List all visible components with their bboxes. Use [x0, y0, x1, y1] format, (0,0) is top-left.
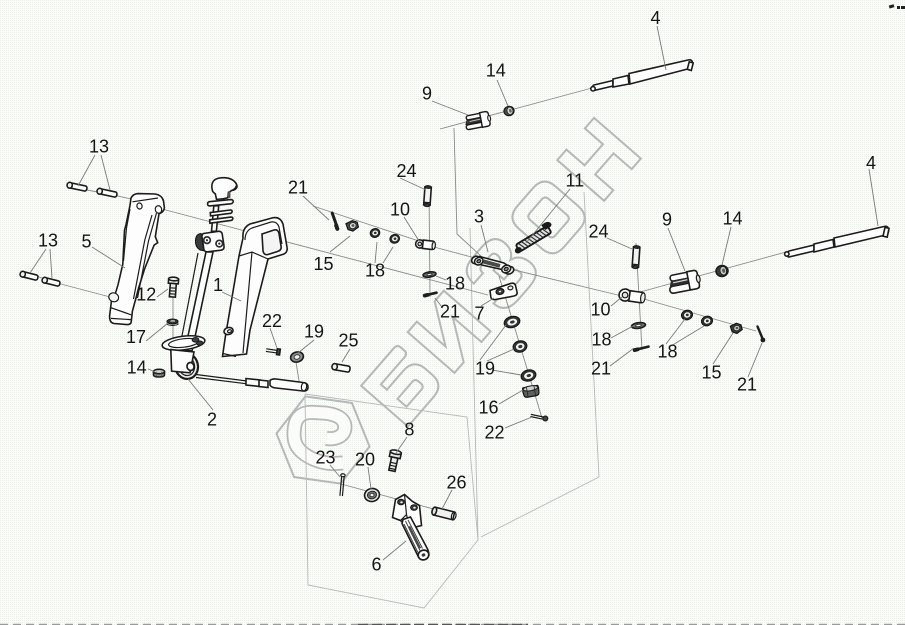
- svg-text:14: 14: [486, 61, 506, 81]
- svg-text:21: 21: [440, 302, 460, 322]
- svg-text:25: 25: [339, 331, 359, 351]
- svg-text:18: 18: [365, 261, 385, 281]
- svg-text:11: 11: [566, 171, 585, 191]
- svg-text:18: 18: [658, 342, 678, 362]
- svg-text:13: 13: [89, 137, 109, 157]
- svg-text:4: 4: [651, 8, 661, 28]
- svg-text:16: 16: [479, 398, 499, 418]
- svg-text:19: 19: [475, 359, 495, 379]
- svg-text:21: 21: [591, 359, 611, 379]
- svg-text:14: 14: [723, 209, 743, 229]
- svg-text:24: 24: [589, 222, 609, 242]
- svg-text:1: 1: [213, 275, 223, 295]
- svg-text:15: 15: [314, 254, 334, 274]
- svg-text:18: 18: [445, 274, 465, 294]
- svg-text:4: 4: [866, 153, 876, 173]
- svg-text:5: 5: [82, 231, 92, 251]
- svg-text:19: 19: [304, 322, 324, 342]
- svg-text:9: 9: [422, 84, 432, 104]
- svg-text:20: 20: [355, 450, 375, 470]
- svg-text:15: 15: [702, 363, 722, 383]
- svg-text:7: 7: [475, 304, 485, 324]
- svg-text:12: 12: [136, 285, 156, 305]
- svg-text:10: 10: [390, 200, 410, 220]
- svg-text:22: 22: [485, 423, 505, 443]
- svg-text:22: 22: [262, 311, 282, 331]
- svg-text:13: 13: [38, 231, 58, 251]
- svg-text:21: 21: [737, 375, 757, 395]
- svg-text:26: 26: [447, 473, 467, 493]
- svg-text:6: 6: [372, 555, 382, 575]
- svg-text:2: 2: [207, 410, 217, 430]
- svg-text:18: 18: [592, 330, 612, 350]
- svg-text:24: 24: [397, 161, 417, 181]
- svg-text:10: 10: [591, 300, 611, 320]
- svg-text:23: 23: [316, 448, 336, 468]
- svg-text:14: 14: [127, 358, 147, 378]
- svg-text:17: 17: [126, 327, 146, 347]
- svg-text:3: 3: [474, 207, 484, 227]
- svg-text:9: 9: [662, 210, 672, 230]
- svg-text:8: 8: [404, 420, 414, 440]
- svg-text:21: 21: [288, 178, 308, 198]
